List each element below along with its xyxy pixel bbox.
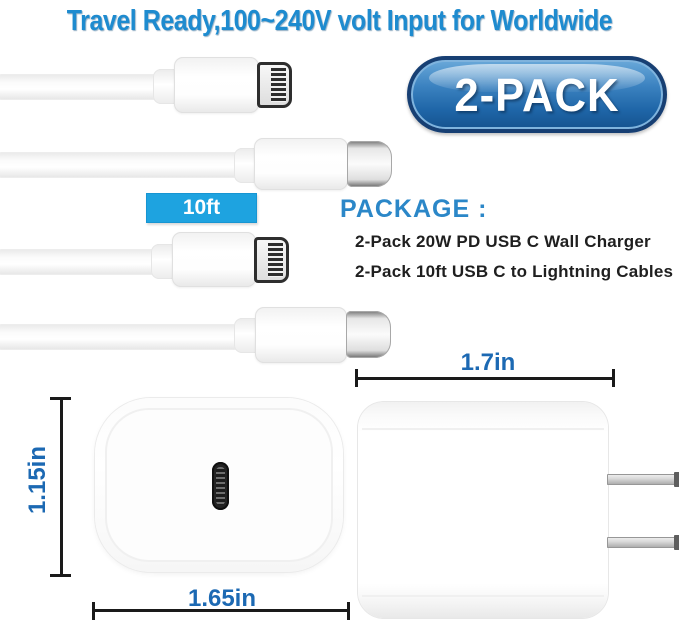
dimension-line [60,398,63,577]
badge-label: 2-PACK [454,68,619,122]
dimension-line [356,377,614,380]
lightning-connector-body [172,232,256,287]
package-heading: PACKAGE : [340,195,487,224]
cable-cord [0,324,246,350]
dimension-width-top: 1.7in [388,349,588,377]
usb-c-port-icon [212,462,229,510]
wall-charger-front-view [95,398,343,572]
dimension-tick [50,397,71,400]
plug-prong-tip [674,535,679,550]
headline: Travel Ready,100~240V volt Input for Wor… [48,5,632,38]
cable-cord [0,74,168,100]
cable-cord [0,152,246,178]
wall-charger-side-view [358,402,608,618]
charger-seam [362,428,604,430]
dimension-tick [347,602,350,620]
lightning-tip-icon [257,62,292,108]
lightning-connector-body [174,57,259,113]
dimension-tick [92,602,95,620]
plug-prong-icon [607,474,676,485]
dimension-tick [355,369,358,387]
product-infographic: Travel Ready,100~240V volt Input for Wor… [0,0,679,630]
two-pack-badge: 2-PACK [407,56,667,133]
usb-c-connector-body [254,138,348,190]
cable-length-badge: 10ft [146,193,257,223]
plug-prong-tip [674,472,679,487]
usb-c-tip-icon [346,311,391,358]
usb-c-connector-body [255,307,347,363]
cable-cord [0,249,166,275]
plug-prong-icon [607,537,676,548]
dimension-height-left: 1.15in [24,446,52,514]
dimension-tick [612,369,615,387]
package-item: 2-Pack 20W PD USB C Wall Charger [355,232,651,252]
usb-c-tip-icon [347,141,392,187]
dimension-tick [50,574,71,577]
lightning-tip-icon [254,237,289,283]
package-item: 2-Pack 10ft USB C to Lightning Cables [355,262,673,282]
charger-seam [362,595,604,597]
dimension-line [93,609,349,612]
